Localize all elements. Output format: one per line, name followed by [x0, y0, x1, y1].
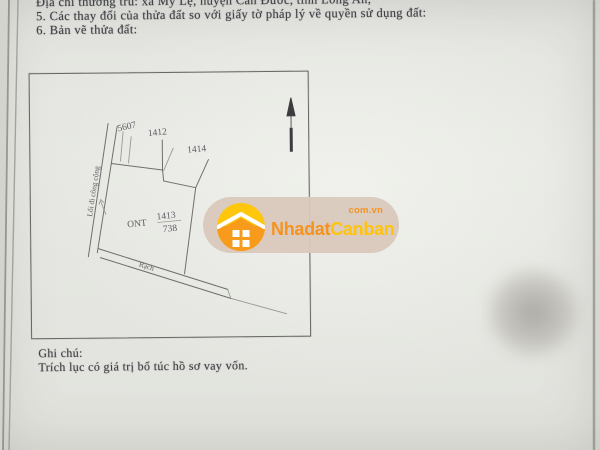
- canal-extension-line: [228, 289, 287, 315]
- brand-part-orange: Nhadat: [271, 219, 330, 239]
- notes-text: Trích lục có giá trị bổ túc hồ sơ vay vố…: [38, 358, 248, 374]
- road-inner-line: [96, 126, 118, 252]
- house-logo-icon: [216, 202, 266, 252]
- watermark-domain-text: com.vn: [349, 205, 383, 216]
- parcel-top-boundary: [111, 163, 162, 170]
- parcel-label-5607: 5607: [117, 120, 138, 134]
- parcel-area-label: 738: [162, 224, 177, 235]
- section6-line: 6. Bản vẽ thửa đất:: [36, 22, 137, 37]
- canal-label: Rạch: [138, 260, 156, 273]
- parcel-label-1414: 1414: [187, 144, 207, 155]
- leader-line-1412: [128, 136, 131, 163]
- land-use-label: ONT: [127, 219, 148, 231]
- watermark-brand-text: NhadatCanban: [271, 220, 394, 238]
- main-parcel-label: ONT 1413 738: [126, 210, 182, 238]
- canal-bottom-line: [100, 256, 230, 299]
- watermark-badge: NhadatCanban com.vn: [203, 197, 399, 253]
- road-label: Lối đi công cộng: [85, 165, 101, 217]
- brand-part-gold: Canban: [330, 219, 394, 239]
- scanned-land-document: Địa chỉ thường trú: xã Mỹ Lệ, huyện Cần …: [0, 0, 600, 450]
- leader-line-5607: [120, 131, 123, 161]
- north-arrow-icon: [287, 98, 296, 152]
- parcel-step-boundary: [163, 170, 196, 188]
- parcel-label-1412: 1412: [148, 127, 168, 139]
- canal-top-line: [98, 247, 227, 290]
- parcel-1414-boundary: [195, 160, 208, 188]
- section5-line: 5. Các thay đổi của thửa đất so với giấy…: [36, 5, 427, 23]
- leader-line-1414: [163, 148, 173, 171]
- parcel-right-boundary: [184, 188, 197, 274]
- notes-label: Ghi chú:: [38, 346, 83, 360]
